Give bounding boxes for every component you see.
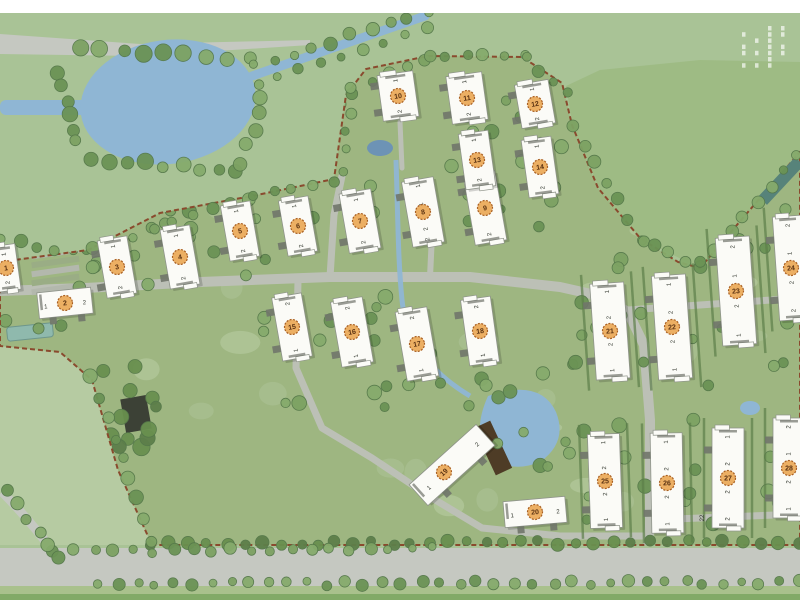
tree-icon (2, 484, 14, 496)
tree-icon (49, 246, 59, 256)
lawn-patch (189, 403, 214, 420)
tree-icon (534, 221, 545, 232)
tree-icon (0, 314, 12, 327)
tree-icon (738, 578, 746, 586)
tree-icon (626, 538, 635, 547)
tree-icon (32, 243, 42, 253)
tree-icon (767, 181, 779, 193)
site-plan-image: 1211221231241251261271122812912101211121… (0, 0, 800, 600)
garden-pond (740, 401, 760, 415)
building-wing (738, 342, 754, 348)
entrance-stub (439, 84, 448, 92)
roof-line (780, 514, 798, 517)
lawn-patch (220, 331, 260, 354)
entrance-stub (370, 82, 379, 90)
tree-icon (622, 214, 633, 225)
garden-pond (367, 140, 393, 156)
tree-icon (306, 43, 316, 53)
tree-icon (428, 543, 436, 551)
tree-icon (612, 262, 624, 274)
tree-icon (565, 575, 577, 587)
tree-icon (571, 539, 580, 548)
tree-icon (378, 289, 393, 304)
entrance-stub (456, 175, 465, 183)
glyph-mark (768, 51, 772, 56)
tree-icon (176, 157, 191, 172)
entrance-stub (402, 231, 411, 239)
internal-road (400, 122, 402, 168)
tree-icon (367, 385, 382, 400)
entrance-stub (443, 111, 452, 119)
tree-icon (121, 471, 135, 485)
tree-icon (660, 577, 669, 586)
block-number: 11 (463, 95, 471, 103)
block-number: 14 (536, 164, 545, 172)
tree-icon (440, 52, 449, 61)
tree-icon (357, 44, 369, 56)
tree-icon (33, 323, 44, 334)
tree-icon (201, 538, 210, 547)
tree-icon (142, 278, 154, 290)
side-number-label: 22 (700, 514, 706, 521)
entrance-stub (713, 321, 721, 329)
entrance-stub (374, 109, 383, 117)
tree-icon (67, 544, 79, 556)
tree-icon (563, 447, 575, 459)
tree-icon (146, 536, 157, 547)
tree-icon (271, 56, 280, 65)
tree-icon (543, 462, 553, 472)
tree-icon (339, 576, 350, 587)
tree-icon (702, 538, 711, 547)
tree-icon (498, 537, 508, 547)
top-margin (0, 0, 800, 13)
tree-icon (515, 535, 526, 546)
glyph-mark (781, 51, 785, 56)
tree-icon (169, 543, 181, 555)
tree-icon (579, 140, 591, 152)
entrance-stub (649, 356, 657, 364)
entrance-stub (580, 452, 588, 459)
tree-icon (337, 53, 345, 61)
entrance-stub (765, 495, 773, 502)
glyph-mark (768, 38, 772, 43)
tree-icon (752, 196, 765, 209)
tree-icon (384, 546, 392, 554)
tree-icon (277, 540, 287, 550)
tree-icon (103, 412, 114, 423)
tree-icon (464, 401, 474, 411)
tree-icon (775, 576, 784, 585)
tree-icon (121, 156, 134, 169)
tree-icon (209, 579, 217, 587)
tree-icon (205, 546, 216, 557)
tree-icon (401, 30, 409, 38)
entrance-stub (587, 357, 595, 365)
tree-icon (662, 537, 672, 547)
tree-icon (561, 437, 571, 447)
block-number: 23 (732, 288, 740, 296)
tree-icon (264, 577, 274, 587)
tree-icon (186, 579, 198, 591)
tree-icon (67, 124, 79, 136)
entrance-stub (333, 204, 342, 212)
tree-icon (500, 52, 508, 60)
entrance-stub (642, 452, 650, 459)
entrance-stub (78, 314, 86, 322)
block-number: 26 (663, 480, 671, 487)
building-wing (788, 516, 800, 521)
tree-icon (563, 88, 572, 97)
tree-icon (249, 60, 257, 68)
tree-icon (703, 380, 714, 391)
tree-icon (394, 578, 406, 590)
tree-icon (298, 540, 307, 549)
tree-icon (233, 158, 247, 172)
tree-icon (588, 155, 601, 168)
tree-icon (737, 535, 749, 547)
tree-icon (286, 184, 295, 193)
tree-icon (148, 549, 157, 558)
glyph-mark (768, 63, 772, 67)
entrance-stub (339, 238, 348, 246)
tree-icon (695, 256, 706, 267)
tree-icon (128, 360, 142, 374)
tree-icon (536, 367, 549, 380)
entrance-stub (766, 237, 774, 245)
block-number-badge: 28 (782, 461, 797, 476)
tree-icon (52, 551, 65, 564)
tree-icon (345, 82, 356, 93)
tree-icon (137, 513, 149, 525)
block-number: 12 (531, 101, 540, 109)
tree-icon (84, 152, 98, 166)
tree-icon (424, 50, 436, 62)
entrance-stub (452, 143, 461, 151)
tree-icon (240, 270, 251, 281)
glyph-mark (781, 45, 785, 50)
block-number: 25 (601, 478, 609, 485)
tree-icon (456, 579, 466, 589)
glyph-mark (755, 51, 759, 56)
tree-icon (253, 90, 267, 104)
tree-icon (248, 191, 257, 200)
tree-icon (137, 153, 153, 169)
tree-icon (123, 383, 137, 397)
tree-icon (381, 381, 392, 392)
tree-icon (249, 124, 263, 138)
block-number: 17 (413, 341, 422, 349)
tree-icon (208, 246, 220, 258)
entrance-stub (550, 523, 558, 531)
tree-icon (324, 37, 338, 51)
block-number: 21 (606, 328, 614, 336)
tree-icon (380, 403, 389, 412)
tree-icon (188, 210, 198, 220)
tree-icon (292, 396, 307, 411)
tree-icon (97, 364, 110, 377)
tree-icon (476, 48, 488, 60)
tree-icon (607, 579, 615, 587)
tree-icon (779, 166, 787, 174)
entrance-stub (464, 228, 473, 236)
building-wing (612, 376, 628, 382)
block-number: 24 (787, 265, 795, 273)
glyph-mark (768, 45, 772, 50)
tree-icon (73, 40, 89, 56)
building-wing (775, 213, 789, 219)
tree-icon (341, 127, 349, 135)
entrance-stub (266, 309, 275, 317)
tree-icon (21, 514, 31, 524)
glyph-mark (768, 32, 772, 37)
roof-line (719, 524, 737, 527)
entrance-stub (389, 324, 398, 332)
tree-icon (346, 108, 357, 119)
tree-icon (480, 379, 492, 391)
tree-icon (638, 236, 649, 247)
entrance-stub (160, 274, 169, 282)
entrance-stub (643, 510, 651, 517)
tree-icon (273, 73, 281, 81)
tree-icon (377, 577, 388, 588)
entrance-stub (396, 193, 405, 201)
building-wing (715, 425, 729, 430)
entrance-stub (272, 210, 281, 218)
tree-icon (365, 543, 377, 555)
glyph-mark (768, 57, 772, 62)
tree-icon (755, 538, 767, 550)
glyph-mark (742, 63, 746, 67)
tree-icon (135, 45, 152, 62)
tree-icon (288, 545, 297, 554)
tree-icon (586, 580, 595, 589)
block-number: 22 (668, 324, 676, 332)
tree-icon (716, 534, 729, 547)
entrance-stub (583, 302, 591, 310)
tree-icon (680, 256, 691, 267)
entrance-stub (220, 247, 229, 255)
tree-icon (550, 579, 560, 589)
tree-icon (532, 65, 544, 77)
tree-icon (258, 326, 268, 336)
tree-icon (247, 547, 255, 555)
tree-icon (386, 17, 396, 27)
tree-icon (771, 536, 784, 549)
tree-icon (445, 159, 459, 173)
tree-icon (462, 537, 471, 546)
building-wing (605, 526, 620, 531)
tree-icon (114, 409, 129, 424)
tree-icon (464, 50, 473, 59)
tree-icon (329, 177, 339, 187)
tree-icon (569, 355, 583, 369)
tree-icon (648, 239, 661, 252)
tree-icon (316, 58, 326, 68)
tree-icon (265, 547, 274, 556)
entrance-stub (331, 351, 340, 359)
entrance-stub (514, 150, 523, 158)
tree-icon (303, 577, 311, 585)
tree-icon (401, 13, 412, 24)
tree-icon (638, 357, 648, 367)
building-wing (776, 415, 790, 420)
tree-icon (622, 574, 634, 586)
tree-icon (417, 575, 429, 587)
tree-icon (314, 334, 326, 346)
tree-icon (662, 246, 674, 258)
tree-icon (141, 422, 157, 438)
tree-icon (719, 580, 729, 590)
building-wing (666, 531, 680, 536)
tree-icon (421, 22, 433, 34)
tree-icon (612, 418, 627, 433)
block-number: 13 (473, 157, 482, 165)
entrance-stub (457, 188, 466, 196)
tree-icon (551, 538, 564, 551)
glyph-mark (768, 26, 772, 31)
tree-icon (135, 579, 143, 587)
entrance-stub (214, 215, 223, 223)
entrance-stub (519, 183, 528, 191)
tree-icon (50, 66, 64, 80)
building-wing (653, 430, 667, 435)
entrance-stub (454, 311, 463, 319)
tree-icon (129, 545, 137, 553)
tree-icon (55, 79, 68, 92)
tree-icon (554, 140, 568, 154)
entrance-stub (508, 91, 517, 99)
building-wing (727, 526, 741, 531)
tree-icon (343, 27, 356, 40)
tree-icon (697, 580, 707, 590)
tree-icon (760, 243, 771, 254)
entrance-stub (512, 117, 521, 125)
tree-icon (638, 479, 652, 493)
tree-icon (768, 360, 779, 371)
tree-icon (239, 137, 252, 150)
roof-line (659, 528, 677, 531)
tree-icon (324, 543, 334, 553)
tree-icon (220, 52, 234, 66)
tree-icon (129, 490, 144, 505)
tree-icon (532, 536, 542, 546)
tree-icon (645, 535, 656, 546)
tree-icon (151, 401, 162, 412)
tree-icon (102, 154, 118, 170)
entrance-stub (582, 506, 590, 513)
glyph-mark (755, 63, 759, 67)
tree-icon (228, 577, 236, 585)
tree-icon (409, 545, 417, 553)
tree-icon (168, 578, 178, 588)
tree-icon (11, 497, 24, 510)
tree-icon (611, 192, 624, 205)
tree-icon (41, 538, 55, 552)
tree-icon (86, 261, 99, 274)
entrance-stub (765, 437, 773, 444)
tree-icon (402, 62, 412, 72)
tree-icon (119, 453, 129, 463)
tree-icon (94, 393, 105, 404)
entrance-stub (704, 505, 712, 512)
tree-icon (243, 576, 254, 587)
tree-icon (281, 577, 291, 587)
tree-icon (62, 106, 78, 122)
entrance-stub (154, 240, 163, 248)
tree-icon (194, 164, 206, 176)
tree-icon (55, 320, 67, 332)
tree-icon (379, 39, 387, 47)
tree-icon (214, 165, 225, 176)
glyph-mark (742, 45, 746, 50)
tree-icon (503, 385, 517, 399)
block-number: 20 (531, 509, 539, 517)
glyph-mark (781, 26, 785, 31)
block-number: 15 (288, 324, 297, 332)
entrance-stub (709, 259, 717, 267)
block-number: 27 (724, 475, 732, 482)
tree-icon (435, 378, 445, 388)
tree-icon (736, 211, 748, 223)
tree-icon (482, 537, 492, 547)
tree-icon (522, 52, 531, 61)
glyph-mark (755, 38, 759, 43)
entrance-stub (645, 296, 653, 304)
tree-icon (91, 40, 108, 57)
tree-icon (366, 22, 379, 35)
tree-icon (608, 536, 620, 548)
entrance-stub (459, 349, 468, 357)
tree-icon (434, 578, 443, 587)
tree-icon (642, 577, 652, 587)
tree-icon (14, 234, 27, 247)
tree-icon (339, 167, 348, 176)
tree-icon (752, 579, 763, 590)
block-number: 28 (785, 465, 793, 472)
tree-icon (322, 581, 332, 591)
glyph-mark (742, 51, 746, 56)
site-plan-canvas: 1211221231241251261271122812912101211121… (0, 0, 800, 600)
tree-icon (93, 580, 102, 589)
tree-icon (92, 545, 101, 554)
tree-icon (70, 135, 81, 146)
tree-icon (290, 51, 298, 59)
tree-icon (356, 579, 368, 591)
tree-icon (150, 581, 158, 589)
building-wing (674, 376, 690, 382)
tree-icon (293, 63, 304, 74)
tree-icon (308, 180, 318, 190)
glyph-mark (781, 32, 785, 37)
tree-icon (35, 527, 46, 538)
entrance-stub (770, 297, 778, 305)
lawn-patch (476, 488, 498, 512)
tree-icon (106, 544, 118, 556)
entrance-stub (272, 345, 281, 353)
entrance-stub (396, 364, 405, 372)
entrance-stub (517, 526, 525, 534)
tree-icon (587, 537, 600, 550)
block-number: 10 (394, 93, 403, 101)
tree-icon (188, 543, 200, 555)
tree-icon (255, 536, 269, 550)
tree-icon (199, 50, 214, 65)
block-number-badge: 27 (721, 471, 736, 486)
tree-icon (372, 302, 381, 311)
tree-icon (441, 534, 454, 547)
roof-line (780, 420, 798, 423)
